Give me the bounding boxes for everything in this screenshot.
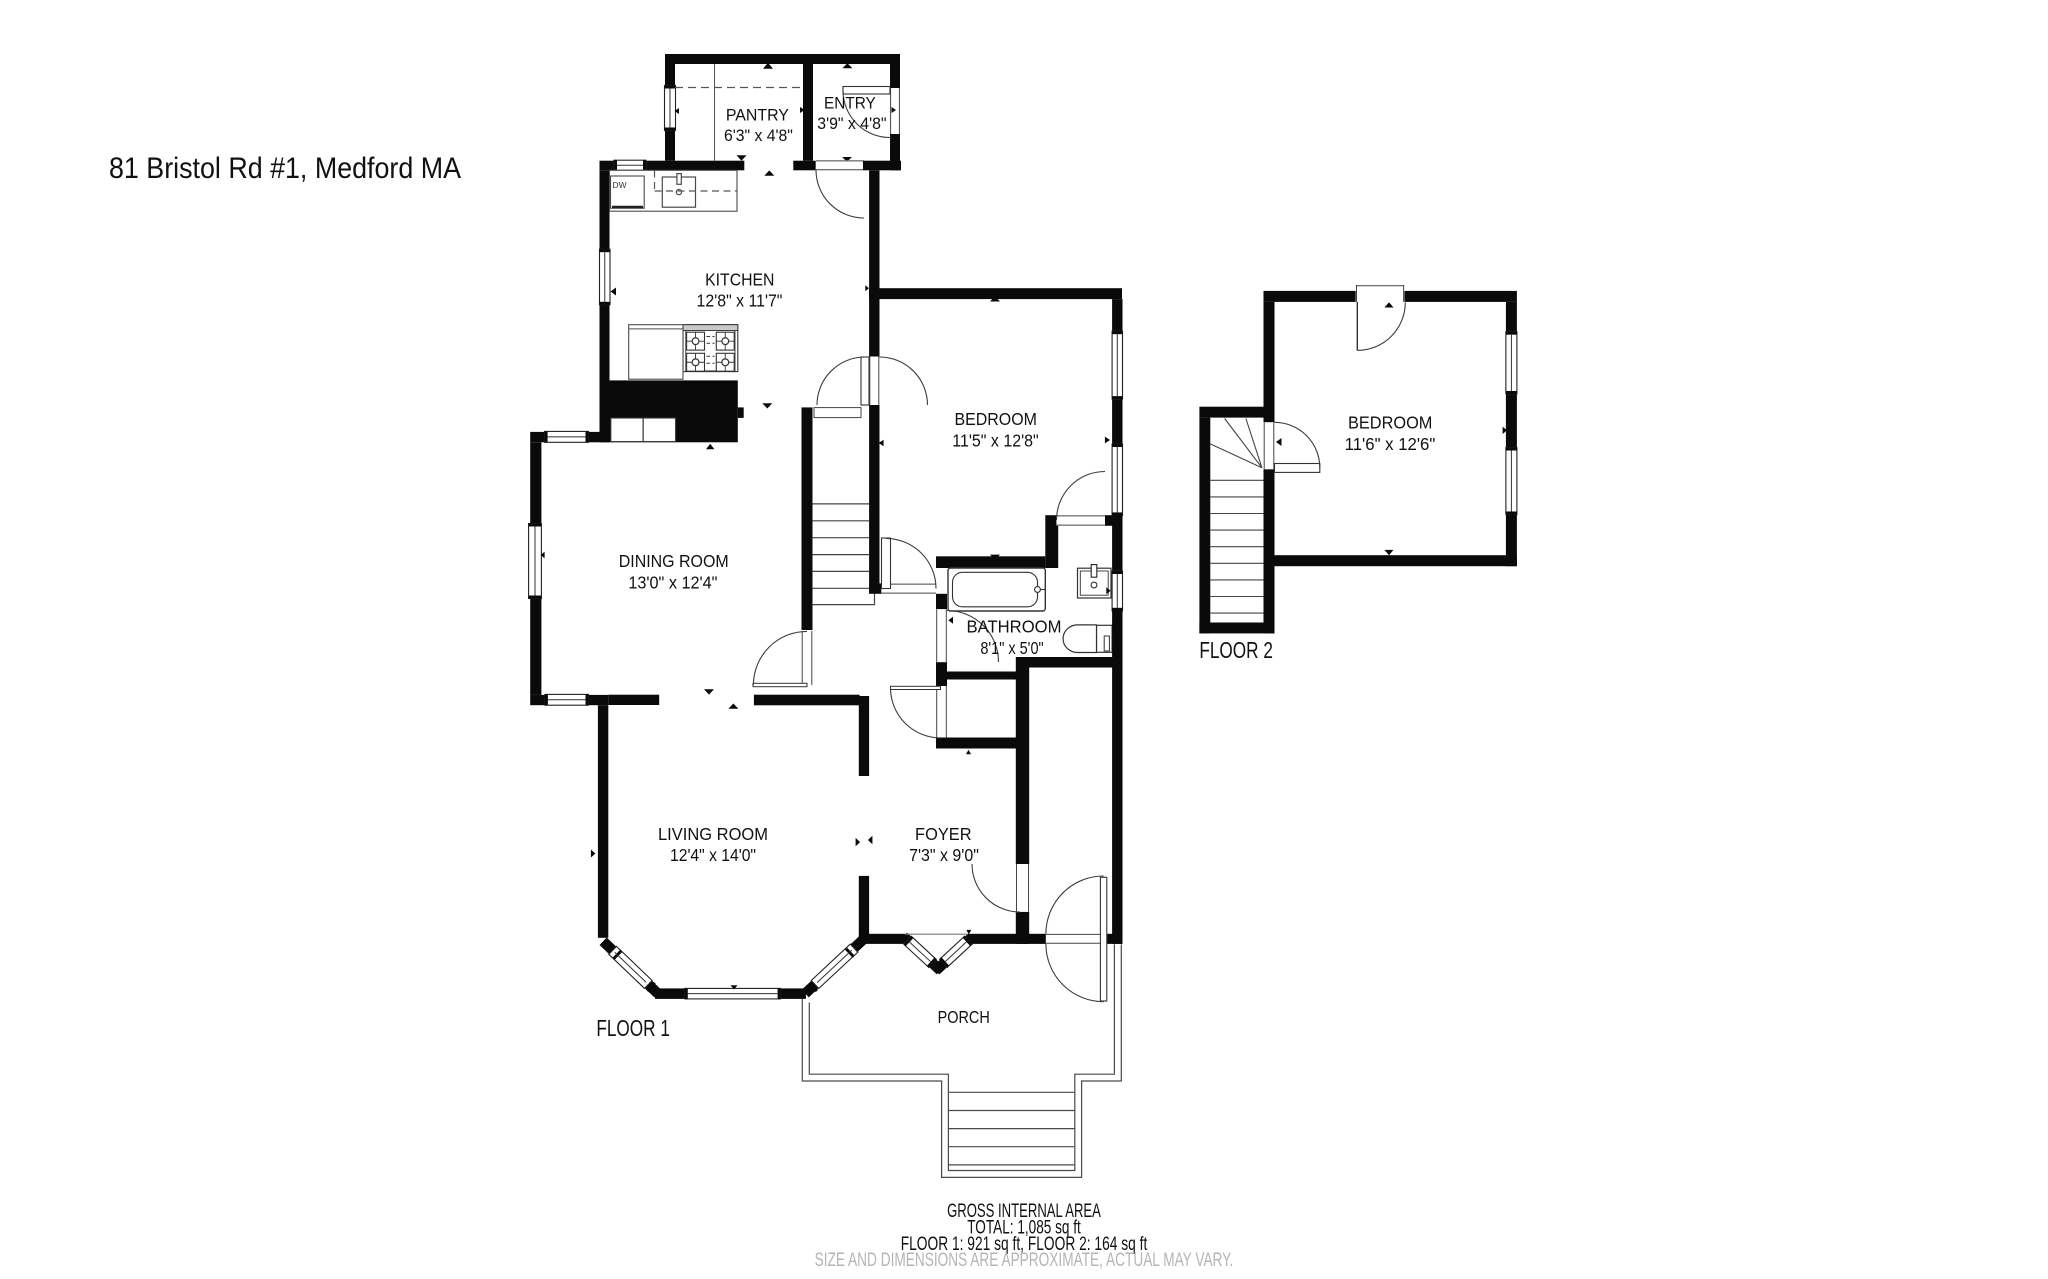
svg-text:6'3" x 4'8": 6'3" x 4'8" <box>724 127 793 145</box>
svg-text:81 Bristol Rd #1, Medford MA: 81 Bristol Rd #1, Medford MA <box>109 152 461 185</box>
svg-text:13'0" x 12'4": 13'0" x 12'4" <box>628 572 717 592</box>
svg-text:7'3" x 9'0": 7'3" x 9'0" <box>909 845 979 865</box>
svg-text:KITCHEN: KITCHEN <box>705 270 774 290</box>
svg-text:11'6" x 12'6": 11'6" x 12'6" <box>1345 434 1436 454</box>
svg-text:FLOOR 1: FLOOR 1 <box>596 1015 670 1041</box>
svg-text:PANTRY: PANTRY <box>726 107 789 125</box>
svg-text:12'8" x 11'7": 12'8" x 11'7" <box>697 291 783 311</box>
svg-text:PORCH: PORCH <box>938 1007 990 1027</box>
svg-text:BATHROOM: BATHROOM <box>967 617 1062 637</box>
svg-text:BEDROOM: BEDROOM <box>954 409 1037 429</box>
svg-text:SIZE AND DIMENSIONS ARE APPROX: SIZE AND DIMENSIONS ARE APPROXIMATE, ACT… <box>815 1250 1234 1271</box>
svg-text:3'9" x 4'8": 3'9" x 4'8" <box>817 115 886 133</box>
svg-text:ENTRY: ENTRY <box>824 95 876 113</box>
svg-text:FOYER: FOYER <box>915 824 972 844</box>
svg-text:FLOOR 2: FLOOR 2 <box>1199 637 1273 663</box>
svg-text:DINING ROOM: DINING ROOM <box>619 551 729 571</box>
svg-text:LIVING ROOM: LIVING ROOM <box>658 824 768 844</box>
svg-text:12'4" x 14'0": 12'4" x 14'0" <box>670 845 756 865</box>
svg-text:DW: DW <box>613 180 627 190</box>
svg-text:BEDROOM: BEDROOM <box>1348 413 1432 433</box>
svg-text:11'5" x 12'8": 11'5" x 12'8" <box>952 431 1038 451</box>
svg-text:8'1" x 5'0": 8'1" x 5'0" <box>980 638 1043 658</box>
